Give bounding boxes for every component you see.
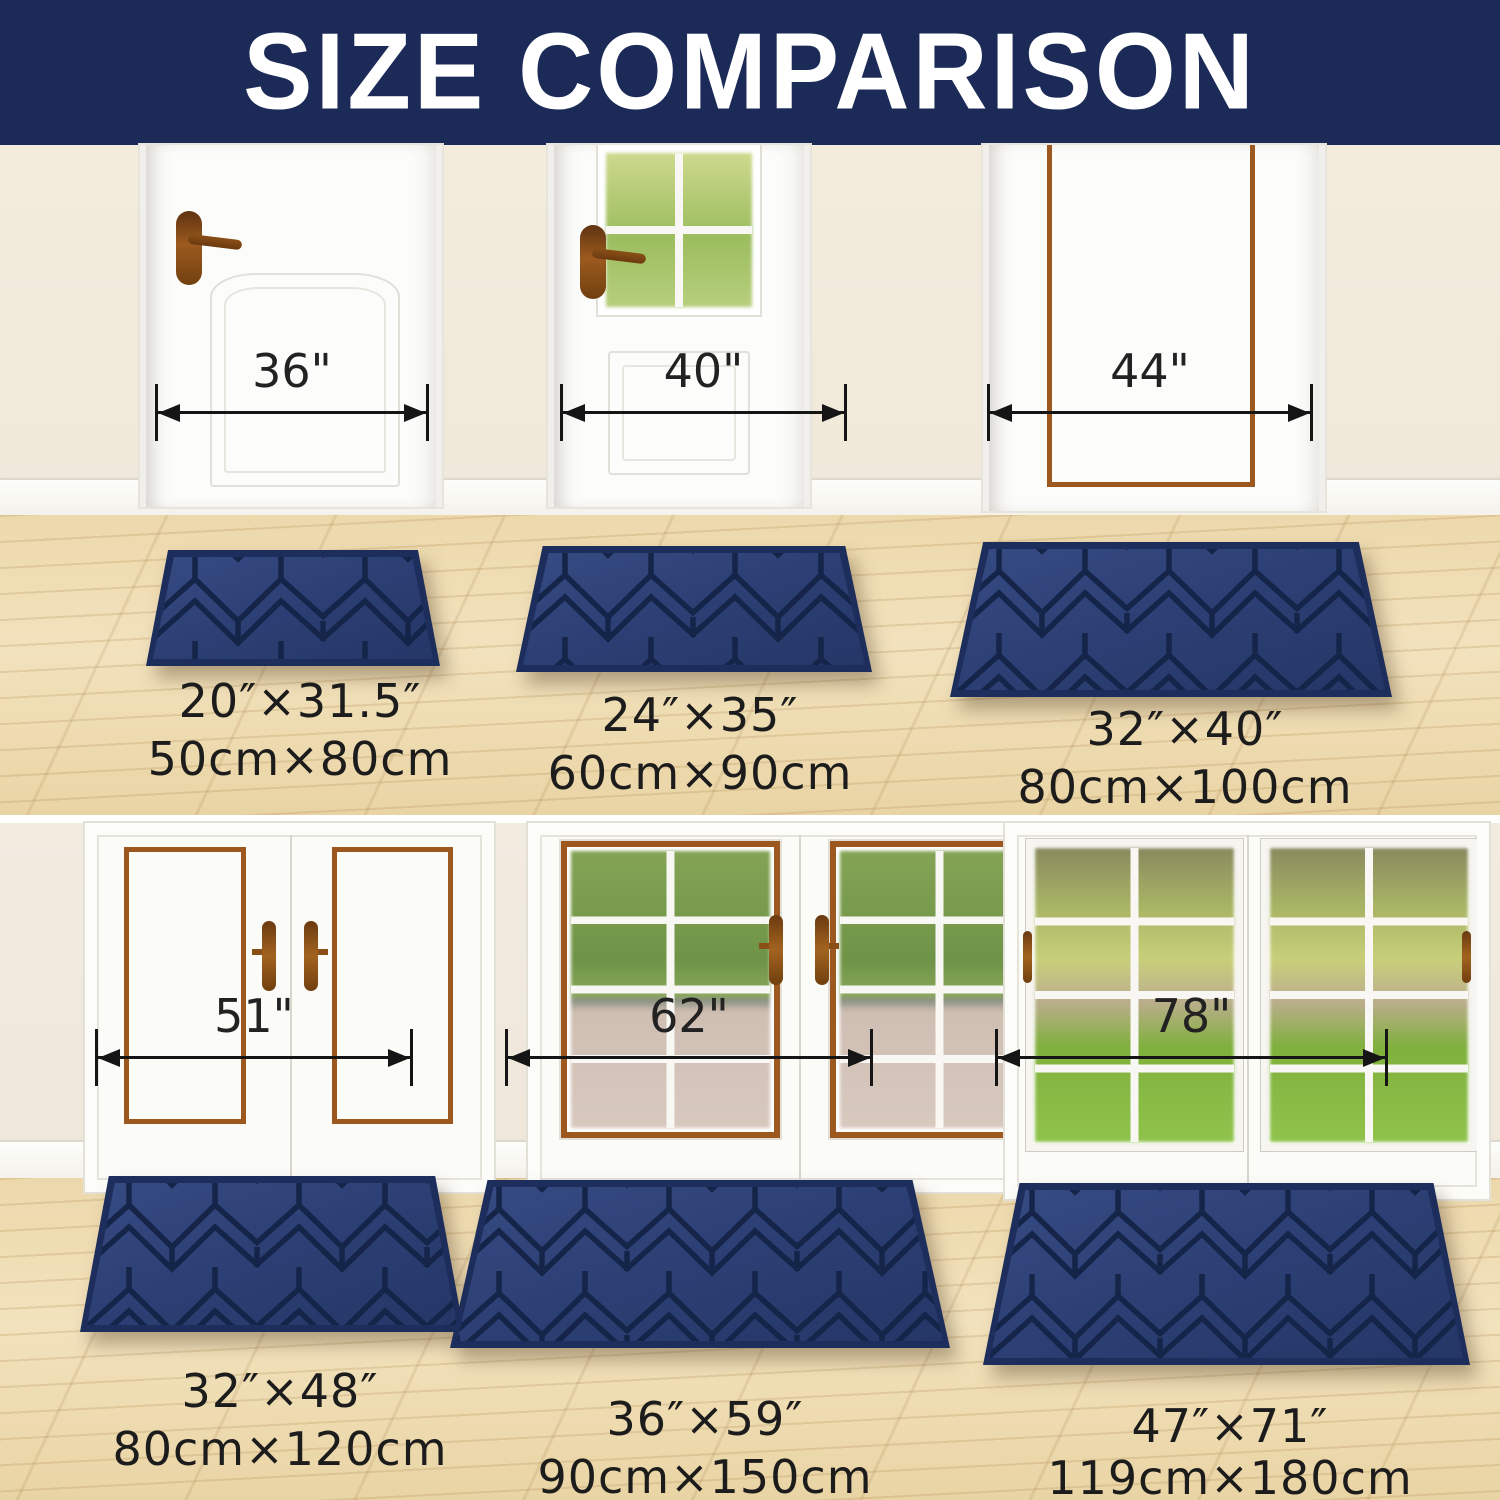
door-handle [262,921,276,991]
mat-size-inches: 36″×59″ [505,1390,905,1448]
arrowhead-right-icon [1288,404,1310,422]
width-arrow-78: 78" [995,997,1388,1059]
arrow-line [987,411,1313,414]
section-divider [0,815,1500,823]
doormat-47x71 [983,1183,1470,1365]
doormat-24x35 [516,546,872,672]
mat-size-cm: 50cm×80cm [110,730,490,788]
single-door-44 [983,145,1325,511]
doormat-20x31 [146,550,440,666]
arrow-end-cap [844,384,847,441]
door-width-label: 51" [95,989,413,1043]
width-arrow-36: 36" [155,352,429,414]
door-leaf-trim [124,847,246,1124]
arrow-end-cap [426,384,429,441]
door-handle [1462,931,1471,983]
doormat-surface [990,1190,1463,1358]
arrowhead-left-icon [998,1049,1020,1067]
width-arrow-40: 40" [560,352,847,414]
arrowhead-left-icon [158,404,180,422]
door-width-label: 40" [560,344,847,398]
arrow-line [155,411,429,414]
mat-size-inches: 20″×31.5″ [110,672,490,730]
header-banner: SIZE COMPARISON [0,0,1500,145]
arrow-end-cap [870,1029,873,1086]
arrowhead-right-icon [388,1049,410,1067]
arrow-end-cap [410,1029,413,1086]
door-handle [304,921,318,991]
door-width-label: 78" [995,989,1388,1043]
mat-size-inches: 47″×71″ [1010,1400,1450,1452]
arrow-line [560,411,847,414]
mat-size-label: 36″×59″ 90cm×150cm [505,1390,905,1500]
mat-size-cm: 119cm×180cm [1010,1452,1450,1500]
mat-size-label: 47″×71″ 119cm×180cm [1010,1400,1450,1500]
doormat-surface [957,549,1385,690]
doormat-border [80,1176,464,1332]
handle-plate [580,225,606,299]
mat-size-cm: 90cm×150cm [505,1448,905,1500]
doormat-surface [87,1183,457,1325]
width-arrow-62: 62" [505,997,873,1059]
doormat-border [516,546,872,672]
handle-stem [318,949,328,955]
doormat-36x59 [450,1180,950,1348]
arrowhead-right-icon [1363,1049,1385,1067]
arrow-end-cap [1310,384,1313,441]
arrow-line [995,1056,1388,1059]
arrowhead-left-icon [563,404,585,422]
door-handle [769,915,783,985]
door-window [598,145,760,315]
door-handle [815,915,829,985]
handle-stem [759,943,769,949]
doormat-32x40 [950,542,1392,697]
width-arrow-44: 44" [987,352,1313,414]
mat-size-inches: 32″×48″ [90,1362,470,1420]
door-width-label: 62" [505,989,873,1043]
mat-size-label: 20″×31.5″ 50cm×80cm [110,672,490,788]
mat-size-cm: 80cm×120cm [90,1420,470,1478]
mat-size-cm: 80cm×100cm [975,758,1395,816]
door-handle [1023,931,1032,983]
arrowhead-right-icon [822,404,844,422]
door-trim [1047,145,1255,487]
handle-stem [829,943,839,949]
arrow-end-cap [1385,1029,1388,1086]
doormat-border [146,550,440,666]
width-arrow-51: 51" [95,997,413,1059]
mat-size-inches: 24″×35″ [510,686,890,744]
arrow-line [505,1056,873,1059]
page-title: SIZE COMPARISON [243,11,1257,135]
doormat-border [983,1183,1470,1365]
arrowhead-left-icon [508,1049,530,1067]
arrow-line [95,1056,413,1059]
handle-stem [252,949,262,955]
doormat-border [950,542,1392,697]
handle-plate [176,211,202,285]
arrowhead-left-icon [98,1049,120,1067]
arrowhead-right-icon [848,1049,870,1067]
size-comparison-infographic: SIZE COMPARISON [0,0,1500,1500]
window-muntins [606,153,752,307]
door-width-label: 44" [987,344,1313,398]
doormat-border [450,1180,950,1348]
mat-size-label: 32″×48″ 80cm×120cm [90,1362,470,1478]
door-leaf-trim [332,847,454,1124]
doormat-surface [457,1187,943,1341]
single-door-40 [548,145,810,507]
doormat-32x48 [80,1176,464,1332]
arrowhead-right-icon [404,404,426,422]
doormat-surface [523,553,865,665]
mat-size-inches: 32″×40″ [975,700,1395,758]
mat-size-label: 32″×40″ 80cm×100cm [975,700,1395,816]
door-width-label: 36" [155,344,429,398]
mat-size-label: 24″×35″ 60cm×90cm [510,686,890,802]
arrowhead-left-icon [990,404,1012,422]
single-door-36 [140,145,442,507]
doormat-surface [153,557,433,659]
mat-size-cm: 60cm×90cm [510,744,890,802]
